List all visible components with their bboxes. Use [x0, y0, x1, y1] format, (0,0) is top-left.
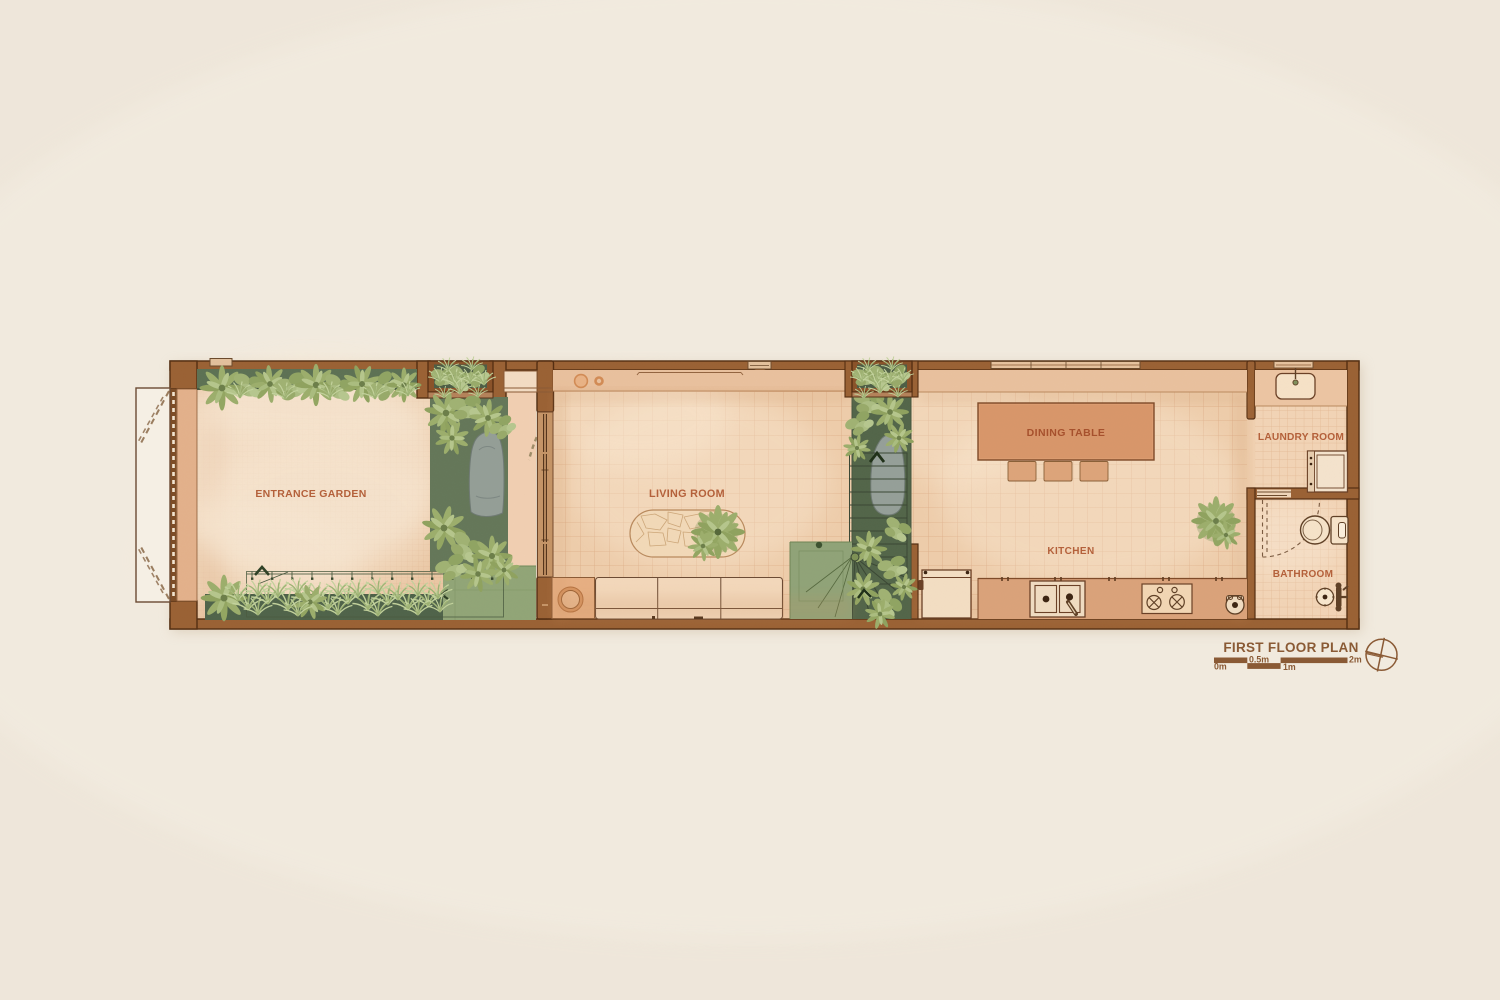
- svg-text:1m: 1m: [1283, 662, 1296, 672]
- svg-text:FIRST FLOOR PLAN: FIRST FLOOR PLAN: [1223, 640, 1358, 655]
- svg-text:2m: 2m: [1349, 655, 1362, 665]
- svg-text:0.5m: 0.5m: [1249, 655, 1269, 665]
- svg-text:0m: 0m: [1214, 662, 1227, 672]
